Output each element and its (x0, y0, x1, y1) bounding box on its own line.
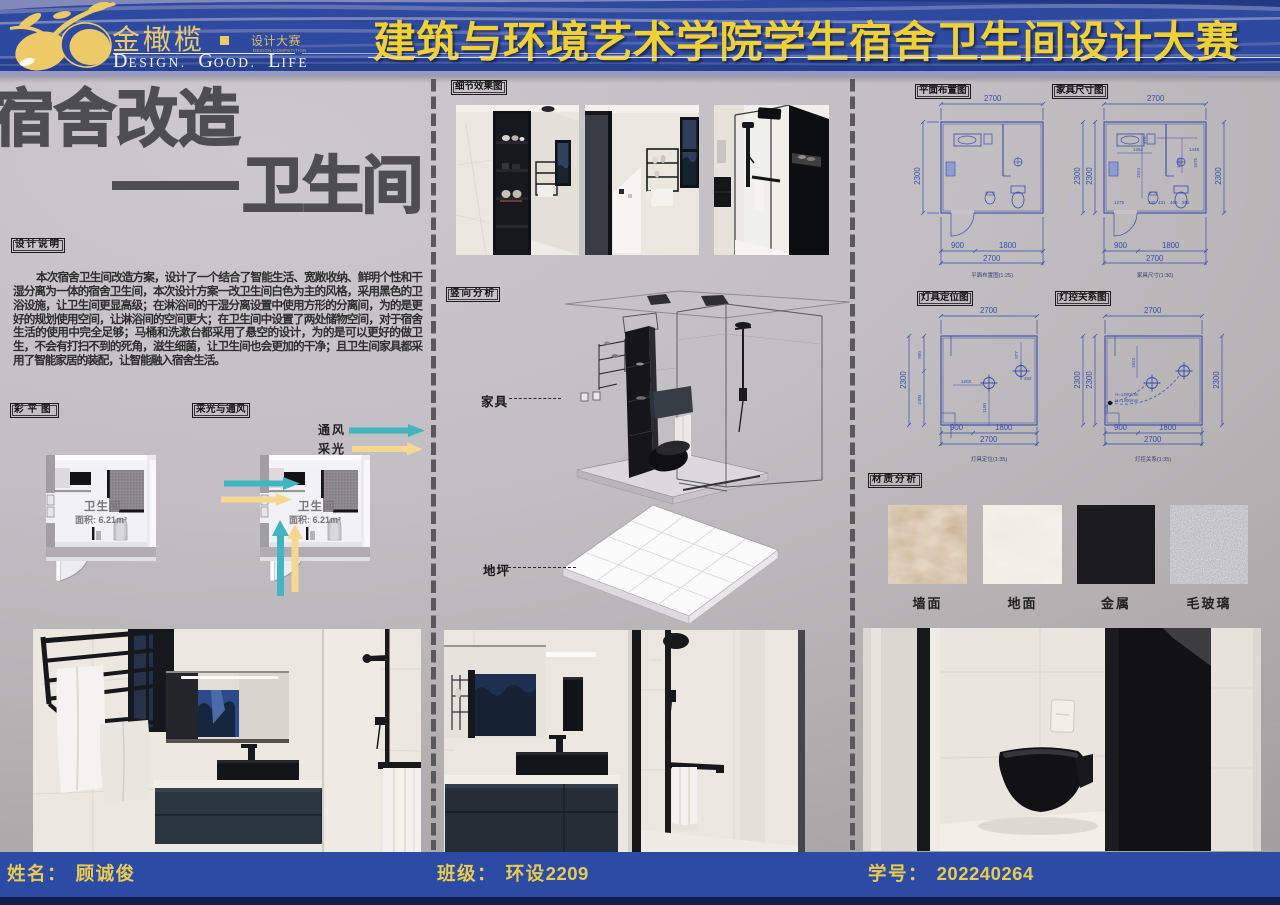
svg-text:H=1300mm: H=1300mm (1115, 392, 1139, 397)
svg-text:1623: 1623 (1131, 357, 1136, 368)
svg-text:2700: 2700 (1146, 254, 1164, 263)
svg-text:1100: 1100 (982, 403, 987, 413)
svg-text:431: 431 (1158, 200, 1166, 205)
svg-text:面积: 6.21m²: 面积: 6.21m² (289, 514, 341, 525)
svg-text:2700: 2700 (983, 254, 1001, 263)
svg-text:2700: 2700 (1144, 435, 1162, 444)
svg-text:面积: 6.21m²: 面积: 6.21m² (75, 514, 127, 525)
svg-text:H=1300mm: H=1300mm (1115, 398, 1139, 403)
svg-text:249: 249 (1148, 200, 1156, 205)
svg-text:900: 900 (950, 423, 964, 432)
svg-text:平面布置图(1:25): 平面布置图(1:25) (971, 271, 1013, 279)
svg-text:225: 225 (1104, 404, 1109, 412)
svg-text:595: 595 (1182, 200, 1190, 205)
svg-text:2700: 2700 (980, 435, 998, 444)
svg-text:1275: 1275 (1114, 200, 1125, 205)
svg-text:1800: 1800 (1159, 423, 1177, 432)
svg-text:2300: 2300 (1073, 167, 1082, 185)
svg-text:1448: 1448 (1189, 147, 1200, 152)
svg-text:1800: 1800 (995, 423, 1013, 432)
svg-text:灯具定位(1:35): 灯具定位(1:35) (971, 455, 1008, 463)
svg-text:2300: 2300 (1212, 371, 1221, 389)
svg-text:1400: 1400 (917, 394, 922, 405)
svg-text:卫生间: 卫生间 (84, 499, 122, 513)
svg-text:2700: 2700 (1144, 306, 1162, 315)
svg-text:通风: 通风 (318, 422, 346, 437)
svg-text:493: 493 (1024, 376, 1032, 381)
svg-text:2300: 2300 (1085, 371, 1094, 389)
svg-text:2700: 2700 (980, 306, 998, 315)
svg-text:2300: 2300 (913, 167, 922, 185)
svg-text:469: 469 (1170, 200, 1178, 205)
svg-text:2700: 2700 (1147, 94, 1165, 103)
svg-text:1524: 1524 (1136, 167, 1141, 178)
svg-text:900: 900 (1114, 423, 1128, 432)
svg-text:2300: 2300 (899, 371, 908, 389)
svg-text:900: 900 (1114, 241, 1128, 250)
svg-text:1800: 1800 (999, 241, 1017, 250)
svg-text:1800: 1800 (1162, 241, 1180, 250)
svg-text:900: 900 (951, 241, 965, 250)
svg-text:家具尺寸(1:30): 家具尺寸(1:30) (1137, 271, 1174, 279)
svg-text:2300: 2300 (1085, 167, 1094, 185)
svg-text:1666: 1666 (1176, 157, 1181, 168)
svg-text:2300: 2300 (1073, 371, 1082, 389)
svg-text:877: 877 (1014, 351, 1019, 359)
svg-text:灯控关系(1:35): 灯控关系(1:35) (1135, 455, 1172, 463)
svg-text:900: 900 (917, 351, 922, 359)
svg-text:2700: 2700 (984, 94, 1002, 103)
svg-text:1575: 1575 (1193, 157, 1198, 168)
svg-text:1203: 1203 (961, 379, 972, 384)
svg-text:采光: 采光 (317, 441, 346, 456)
svg-text:1252: 1252 (1133, 147, 1144, 152)
svg-text:卫生间: 卫生间 (298, 499, 336, 513)
svg-text:2300: 2300 (1214, 167, 1223, 185)
svg-text:476: 476 (1142, 136, 1147, 144)
